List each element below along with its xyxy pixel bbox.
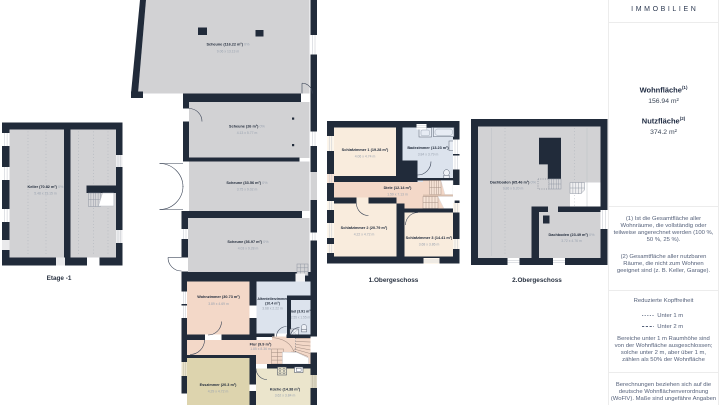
svg-text:1.59 x 7.13 m: 1.59 x 7.13 m (387, 193, 408, 197)
svg-text:2.55 x 1.55 m: 2.55 x 1.55 m (291, 315, 311, 319)
svg-text:Dachboden (23.49 m²) 0%: Dachboden (23.49 m²) 0% (548, 233, 595, 237)
svg-text:3.72 x 4.76 m: 3.72 x 4.76 m (561, 239, 582, 243)
svg-text:5.48 x 13.15 m: 5.48 x 13.15 m (34, 192, 57, 196)
svg-text:9.06 x 13.13 m: 9.06 x 13.13 m (217, 50, 240, 54)
svg-text:Scheune (26 m²) 0%: Scheune (26 m²) 0% (229, 125, 266, 129)
svg-text:3.68 x 3.86 m: 3.68 x 3.86 m (419, 243, 440, 247)
svg-text:Esszimmer (20.3 m²): Esszimmer (20.3 m²) (200, 383, 237, 387)
svg-text:2.Obergeschoss: 2.Obergeschoss (512, 277, 562, 284)
svg-text:3.75 x 9.02 m: 3.75 x 9.02 m (237, 188, 258, 192)
svg-text:Scheune (33.56 m²) 0%: Scheune (33.56 m²) 0% (226, 181, 268, 185)
svg-text:Schlafzimmer 1 (19.28 m²): Schlafzimmer 1 (19.28 m²) (342, 148, 389, 152)
svg-text:9.86 x 6.20 m: 9.86 x 6.20 m (503, 187, 524, 191)
svg-text:1.85 x 8.36 m: 1.85 x 8.36 m (250, 347, 271, 351)
svg-text:Dachboden (65.46 m²) 0%: Dachboden (65.46 m²) 0% (490, 181, 537, 185)
svg-text:Bad (3.91 m²): Bad (3.91 m²) (289, 310, 312, 314)
svg-text:3.89 x 4.69 m: 3.89 x 4.69 m (208, 302, 229, 306)
svg-text:Scheune (116.22 m²) 0%: Scheune (116.22 m²) 0% (206, 43, 250, 47)
svg-text:4.29 x 4.72 m: 4.29 x 4.72 m (208, 390, 229, 394)
svg-text:Schlafzimmer 3 (14.41 m²): Schlafzimmer 3 (14.41 m²) (406, 236, 453, 240)
svg-text:3.84 x 3.79 m: 3.84 x 3.79 m (418, 153, 439, 157)
svg-text:Etage -1: Etage -1 (47, 275, 72, 282)
svg-text:Badezimmer (13.23 m²): Badezimmer (13.23 m²) (407, 146, 449, 150)
svg-text:Keller (70.82 m²) 0%: Keller (70.82 m²) 0% (28, 185, 65, 189)
svg-text:4.03 x 9.28 m: 4.03 x 9.28 m (238, 247, 259, 251)
svg-text:4.13 x 5.77 m: 4.13 x 5.77 m (237, 131, 258, 135)
svg-text:3.62 x 3.84 m: 3.62 x 3.84 m (275, 394, 296, 398)
svg-text:Altenteilerzimmer: Altenteilerzimmer (257, 297, 288, 301)
svg-text:Diele (12.14 m²): Diele (12.14 m²) (384, 186, 413, 190)
svg-text:4.06 x 4.74 m: 4.06 x 4.74 m (355, 155, 376, 159)
svg-text:1.Obergeschoss: 1.Obergeschoss (369, 277, 419, 284)
svg-text:Scheune (36.97 m²) 0%: Scheune (36.97 m²) 0% (227, 240, 269, 244)
svg-text:Schlafzimmer 2 (20.79 m²): Schlafzimmer 2 (20.79 m²) (341, 226, 388, 230)
svg-text:(10.4 m²): (10.4 m²) (265, 302, 281, 306)
svg-text:Wohnzimmer (30.73 m²): Wohnzimmer (30.73 m²) (197, 295, 240, 299)
svg-text:Küche (14.38 m²): Küche (14.38 m²) (270, 388, 301, 392)
svg-text:3.68 x 2.22 m: 3.68 x 2.22 m (262, 306, 283, 310)
svg-text:4.22 x 4.72 m: 4.22 x 4.72 m (354, 233, 375, 237)
